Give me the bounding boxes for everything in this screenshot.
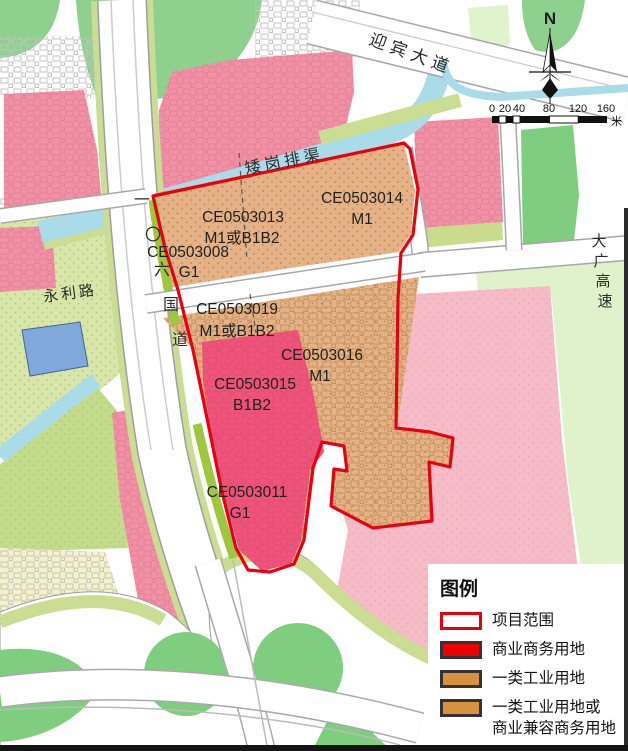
parcel-label-ce0503014-code: CE0503014 bbox=[321, 190, 403, 207]
parcel-label-ce0503019-use: M1或B1B2 bbox=[200, 322, 275, 340]
legend-item-project-boundary: 项目范围 bbox=[438, 611, 624, 631]
scale-segment bbox=[506, 116, 513, 123]
parcel-label-ce0503015-code: CE0503015 bbox=[214, 376, 296, 393]
scale-tick-0: 0 bbox=[489, 103, 495, 115]
legend-swatch-industrial bbox=[440, 670, 482, 688]
legend-swatch-project-boundary bbox=[440, 612, 482, 630]
scale-segment bbox=[520, 116, 550, 123]
road-label-daguang-char-1: 大 bbox=[591, 233, 606, 250]
scale-segment bbox=[550, 116, 579, 123]
scale-tick-160: 160 bbox=[597, 103, 615, 115]
legend-label: 一类工业用地或 商业兼容商务用地 bbox=[492, 698, 616, 738]
scale-tick-80: 80 bbox=[543, 103, 555, 115]
parcel-label-ce0503016-use: M1 bbox=[309, 368, 331, 385]
legend-title: 图例 bbox=[440, 574, 624, 601]
legend-item-commercial: 商业商务用地 bbox=[438, 640, 624, 660]
scale-unit: 米 bbox=[611, 115, 622, 128]
parcel-label-ce0503008-use: G1 bbox=[179, 264, 200, 281]
legend-label-line2: 商业兼容商务用地 bbox=[492, 719, 616, 739]
blue-parcel-left bbox=[22, 322, 88, 376]
scale-segment bbox=[492, 116, 499, 123]
legend-panel: 图例 项目范围 商业商务用地 一类工业用地 一类工业用地或 商业兼容商务用地 公… bbox=[428, 564, 628, 745]
legend-item-industrial-or-commercial: 一类工业用地或 商业兼容商务用地 bbox=[438, 698, 624, 738]
parcel-label-ce0503013-code: CE0503013 bbox=[202, 209, 284, 226]
road-between-parcels bbox=[508, 122, 514, 250]
scale-tick-120: 120 bbox=[569, 103, 587, 115]
parcel-label-ce0503015-use: B1B2 bbox=[233, 397, 271, 414]
legend-label: 项目范围 bbox=[492, 611, 554, 631]
legend-swatch-industrial-or-commercial bbox=[440, 699, 482, 717]
road-label-daguang-char-2: 广 bbox=[593, 253, 608, 270]
legend-swatch-commercial bbox=[440, 641, 482, 659]
legend-item-industrial: 一类工业用地 bbox=[438, 669, 624, 689]
road-label-106-char-2: 〇 bbox=[145, 226, 161, 244]
urban-fabric-topleft bbox=[0, 36, 96, 98]
scale-segment bbox=[578, 116, 607, 123]
map-frame-right bbox=[624, 208, 628, 745]
legend-label: 一类工业用地 bbox=[492, 669, 585, 689]
scale-tick-40: 40 bbox=[513, 103, 525, 115]
road-label-daguang-char-4: 速 bbox=[597, 293, 612, 310]
parcel-label-ce0503014-use: M1 bbox=[351, 211, 373, 228]
parcel-label-ce0503008-code: CE0503008 bbox=[147, 244, 229, 261]
parcel-label-ce0503011-code: CE0503011 bbox=[207, 484, 288, 501]
road-label-106-char-3: 六 bbox=[154, 261, 170, 279]
road-label-106-char-4: 国 bbox=[163, 297, 179, 314]
road-label-daguang-char-3: 高 bbox=[595, 273, 610, 290]
parcel-label-ce0503011-use: G1 bbox=[230, 505, 251, 522]
planning-map-screenshot: 迎宾大道 矮岗排渠 永利路 一 〇 六 国 道 大 广 高 速 CE050301… bbox=[0, 0, 628, 751]
scale-segment bbox=[499, 116, 506, 123]
residential-area-northeast-texture bbox=[414, 117, 503, 230]
park-parcel-east bbox=[521, 125, 579, 257]
road-label-106-char-1: 一 bbox=[134, 192, 150, 209]
legend-label: 商业商务用地 bbox=[492, 640, 585, 660]
map-frame-bottom bbox=[0, 745, 628, 751]
parcel-label-ce0503019-code: CE0503019 bbox=[196, 301, 278, 318]
road-label-106-char-5: 道 bbox=[172, 331, 188, 349]
scale-tick-20: 20 bbox=[499, 103, 511, 115]
north-label: N bbox=[544, 9, 556, 28]
parcel-label-ce0503016-code: CE0503016 bbox=[281, 347, 363, 364]
scale-segment bbox=[513, 116, 520, 123]
legend-label-line1: 一类工业用地或 bbox=[492, 698, 616, 718]
